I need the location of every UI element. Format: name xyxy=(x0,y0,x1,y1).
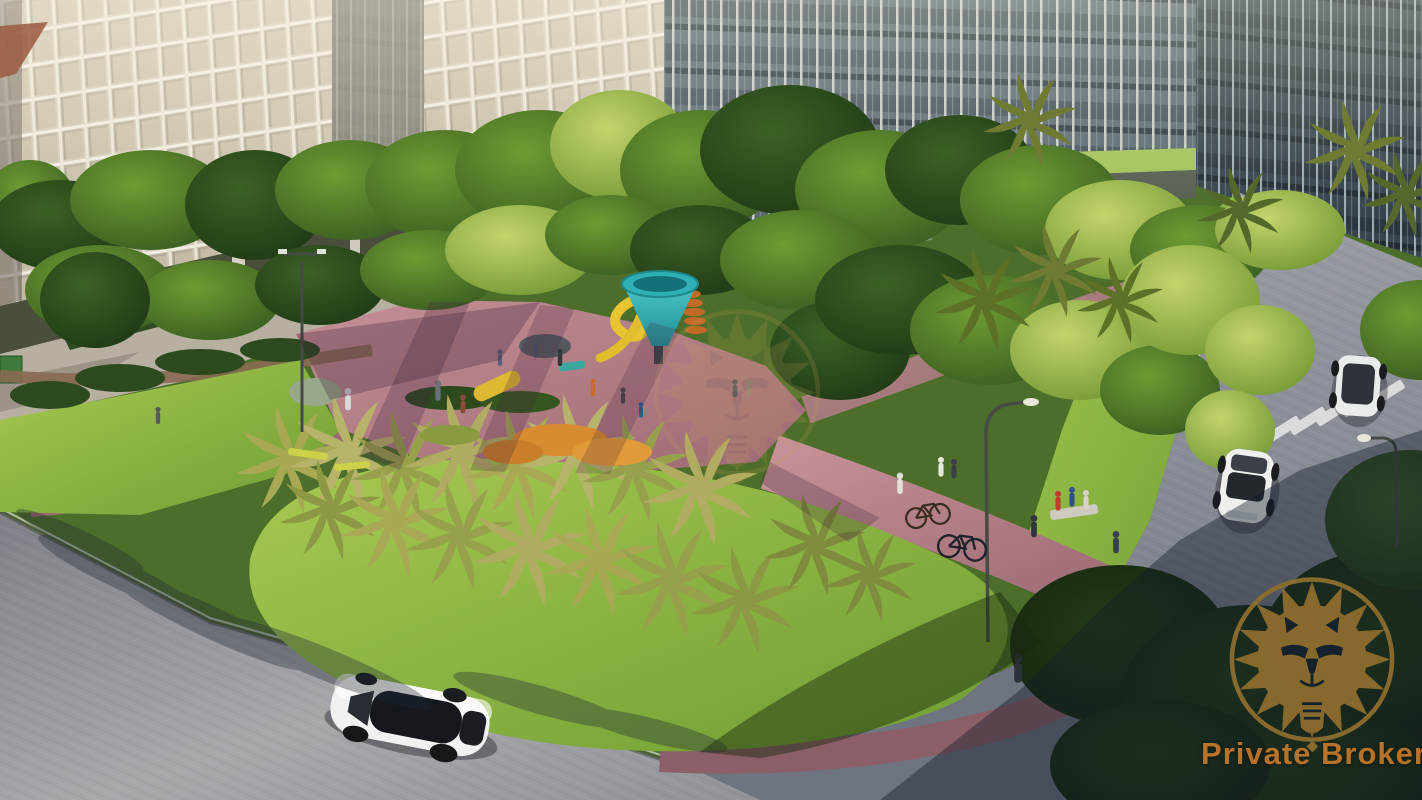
watermark-brand-text: Private Broker xyxy=(1186,736,1422,772)
scene-canvas xyxy=(0,0,1422,800)
aerial-render: Private Broker xyxy=(0,0,1422,800)
play-pad xyxy=(420,425,480,445)
